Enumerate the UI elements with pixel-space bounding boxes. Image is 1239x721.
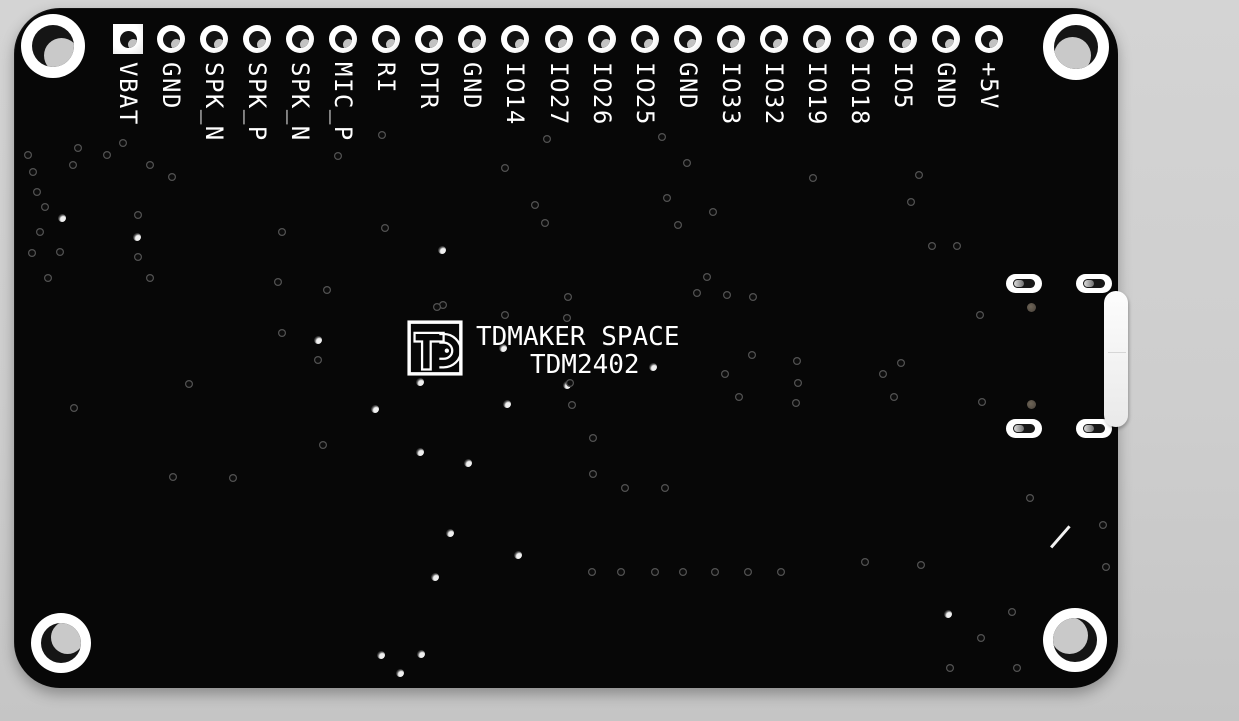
pin-label: DTR <box>416 62 442 110</box>
via <box>566 379 574 387</box>
pin-hole <box>292 31 309 48</box>
via <box>33 188 41 196</box>
via <box>915 171 923 179</box>
pin-hole-highlight <box>300 39 309 48</box>
smd-slot-highlight <box>1014 425 1024 432</box>
via <box>323 286 331 294</box>
smd-oval-pad <box>1006 274 1042 293</box>
via <box>438 246 446 254</box>
pin-hole <box>335 31 352 48</box>
pin-hole <box>722 31 739 48</box>
pin-label: SPK_N <box>201 62 227 142</box>
mounting-hole-bore <box>32 25 74 67</box>
pin-label: IO25 <box>632 62 658 126</box>
via <box>278 228 286 236</box>
via <box>274 278 282 286</box>
pin-hole-highlight <box>515 39 524 48</box>
mounting-hole <box>21 14 85 78</box>
pin-pad-gnd <box>932 25 960 53</box>
via <box>663 194 671 202</box>
via <box>693 289 701 297</box>
via <box>953 242 961 250</box>
pin-hole <box>378 31 395 48</box>
via <box>709 208 717 216</box>
mounting-hole <box>1043 608 1107 672</box>
via <box>976 311 984 319</box>
via <box>334 152 342 160</box>
pin-label: SPK_P <box>244 62 270 142</box>
mounting-hole-see-through <box>51 623 82 654</box>
via <box>503 400 511 408</box>
via <box>617 568 625 576</box>
pin-hole <box>421 31 438 48</box>
pin-hole-highlight <box>386 39 395 48</box>
via <box>229 474 237 482</box>
pin-hole <box>206 31 223 48</box>
via <box>74 144 82 152</box>
pin-pad-io25 <box>631 25 659 53</box>
mounting-hole-bore <box>41 623 81 663</box>
pin-pad-spk_n <box>200 25 228 53</box>
pin-hole <box>894 31 911 48</box>
pin-pad-io27 <box>545 25 573 53</box>
via <box>36 228 44 236</box>
via <box>499 344 507 352</box>
pcb-3d-render: TDMAKER SPACE TDM2402 VBATGNDSPK_NSPK_PS… <box>0 0 1239 721</box>
pin-hole-highlight <box>902 39 911 48</box>
pin-hole-highlight <box>859 39 868 48</box>
via <box>278 329 286 337</box>
plated-dot <box>1027 400 1036 409</box>
via <box>146 274 154 282</box>
via <box>543 135 551 143</box>
silkscreen-model-number: TDM2402 <box>530 350 640 380</box>
pin-hole-highlight <box>171 39 180 48</box>
via <box>377 651 385 659</box>
pin-hole <box>550 31 567 48</box>
pin-hole <box>163 31 180 48</box>
via <box>396 669 404 677</box>
pin-hole-highlight <box>257 39 266 48</box>
pin-pad-io5 <box>889 25 917 53</box>
via <box>679 568 687 576</box>
pin-hole-highlight <box>343 39 352 48</box>
pin-label: GND <box>459 62 485 110</box>
pin-hole-highlight <box>214 39 223 48</box>
pin-hole-highlight <box>429 39 438 48</box>
td-logo-icon <box>407 320 463 380</box>
via <box>514 551 522 559</box>
via <box>568 401 576 409</box>
pin-hole <box>593 31 610 48</box>
via <box>70 404 78 412</box>
pin-pad-io19 <box>803 25 831 53</box>
pin-label: RI <box>373 62 399 94</box>
via <box>907 198 915 206</box>
pin-label: IO32 <box>761 62 787 126</box>
via <box>41 203 49 211</box>
pin-label: SPK_N <box>287 62 313 142</box>
pin-label: IO19 <box>804 62 830 126</box>
via <box>501 164 509 172</box>
pin-label: IO14 <box>502 62 528 126</box>
via <box>978 398 986 406</box>
via <box>541 219 549 227</box>
pin-label: IO27 <box>546 62 572 126</box>
via <box>749 293 757 301</box>
via <box>589 434 597 442</box>
via <box>464 459 472 467</box>
via <box>103 151 111 159</box>
via <box>674 221 682 229</box>
via <box>649 363 657 371</box>
via <box>119 139 127 147</box>
via <box>69 161 77 169</box>
pin-hole <box>765 31 782 48</box>
via <box>146 161 154 169</box>
via <box>133 233 141 241</box>
via <box>28 249 36 257</box>
via <box>744 568 752 576</box>
via <box>169 473 177 481</box>
mounting-hole-bore <box>1053 618 1097 662</box>
pin-pad-io33 <box>717 25 745 53</box>
via <box>433 303 441 311</box>
pin-hole-highlight <box>558 39 567 48</box>
via <box>431 573 439 581</box>
pin-label: IO26 <box>589 62 615 126</box>
via <box>1013 664 1021 672</box>
pin-pad-io26 <box>588 25 616 53</box>
via <box>861 558 869 566</box>
via <box>621 484 629 492</box>
via <box>1102 563 1110 571</box>
pin-pad-gnd <box>157 25 185 53</box>
via <box>56 248 64 256</box>
via <box>416 448 424 456</box>
smd-slot <box>1013 279 1035 288</box>
plated-dot <box>1027 303 1036 312</box>
via <box>890 393 898 401</box>
via <box>134 211 142 219</box>
mounting-hole <box>31 613 91 673</box>
smd-oval-pad <box>1076 274 1112 293</box>
pin-pad-spk_p <box>243 25 271 53</box>
via <box>378 131 386 139</box>
via <box>928 242 936 250</box>
smd-slot-highlight <box>1014 280 1024 287</box>
via <box>501 311 509 319</box>
mounting-hole-bore <box>1054 25 1098 69</box>
via <box>531 201 539 209</box>
via <box>371 405 379 413</box>
via <box>721 370 729 378</box>
pin-hole <box>851 31 868 48</box>
pin-hole-highlight <box>644 39 653 48</box>
smd-slot <box>1013 424 1035 433</box>
mounting-hole-see-through <box>1054 37 1091 70</box>
via <box>563 314 571 322</box>
mounting-hole-see-through <box>44 38 75 68</box>
via <box>1099 521 1107 529</box>
via <box>723 291 731 299</box>
via <box>1008 608 1016 616</box>
via <box>381 224 389 232</box>
pin-hole <box>249 31 266 48</box>
smd-slot <box>1083 279 1105 288</box>
pin-hole <box>120 31 137 48</box>
smd-oval-pad <box>1006 419 1042 438</box>
via <box>134 253 142 261</box>
via <box>897 359 905 367</box>
mounting-hole <box>1043 14 1109 80</box>
pin-pad-vbat <box>113 24 143 54</box>
via <box>735 393 743 401</box>
via <box>946 664 954 672</box>
via <box>683 159 691 167</box>
via <box>651 568 659 576</box>
mounting-hole-see-through <box>1053 618 1088 654</box>
pin-pad-5v <box>975 25 1003 53</box>
via <box>58 214 66 222</box>
pin-label: IO5 <box>890 62 916 110</box>
pin-hole <box>679 31 696 48</box>
pin-label: IO18 <box>847 62 873 126</box>
via <box>319 441 327 449</box>
pin-hole-highlight <box>945 39 954 48</box>
via <box>794 379 802 387</box>
via <box>416 378 424 386</box>
pin-hole-highlight <box>128 39 137 48</box>
pin-hole-highlight <box>989 39 998 48</box>
via <box>879 370 887 378</box>
pin-hole <box>464 31 481 48</box>
pin-label: VBAT <box>115 62 141 126</box>
via <box>24 151 32 159</box>
pin-hole-highlight <box>730 39 739 48</box>
via <box>711 568 719 576</box>
via <box>792 399 800 407</box>
via <box>977 634 985 642</box>
via <box>917 561 925 569</box>
pin-hole-highlight <box>472 39 481 48</box>
via <box>564 293 572 301</box>
pin-hole-highlight <box>601 39 610 48</box>
smd-slot-highlight <box>1084 425 1094 432</box>
via <box>658 133 666 141</box>
pin-pad-spk_n <box>286 25 314 53</box>
pin-hole <box>507 31 524 48</box>
via <box>944 610 952 618</box>
pin-label: GND <box>675 62 701 110</box>
pin-hole-highlight <box>816 39 825 48</box>
via <box>417 650 425 658</box>
pin-label: GND <box>158 62 184 110</box>
usb-connector-seam <box>1108 352 1126 353</box>
via <box>703 273 711 281</box>
pin-pad-gnd <box>674 25 702 53</box>
smd-slot-highlight <box>1084 280 1094 287</box>
pin-hole <box>937 31 954 48</box>
pin-label: MIC_P <box>330 62 356 142</box>
via <box>777 568 785 576</box>
pin-hole <box>808 31 825 48</box>
via <box>793 357 801 365</box>
via <box>661 484 669 492</box>
via <box>314 356 322 364</box>
via <box>446 529 454 537</box>
via <box>589 470 597 478</box>
pin-hole <box>636 31 653 48</box>
pin-hole-highlight <box>773 39 782 48</box>
via <box>168 173 176 181</box>
via <box>809 174 817 182</box>
pin-label: GND <box>933 62 959 110</box>
via <box>44 274 52 282</box>
pin-pad-io18 <box>846 25 874 53</box>
via <box>29 168 37 176</box>
via <box>588 568 596 576</box>
via <box>185 380 193 388</box>
pin-label: +5V <box>976 62 1002 110</box>
pin-label: IO33 <box>718 62 744 126</box>
via <box>314 336 322 344</box>
pin-hole <box>981 31 998 48</box>
via <box>1026 494 1034 502</box>
pin-pad-io32 <box>760 25 788 53</box>
usb-connector-tab <box>1104 291 1128 427</box>
smd-slot <box>1083 424 1105 433</box>
via <box>748 351 756 359</box>
pin-hole-highlight <box>687 39 696 48</box>
